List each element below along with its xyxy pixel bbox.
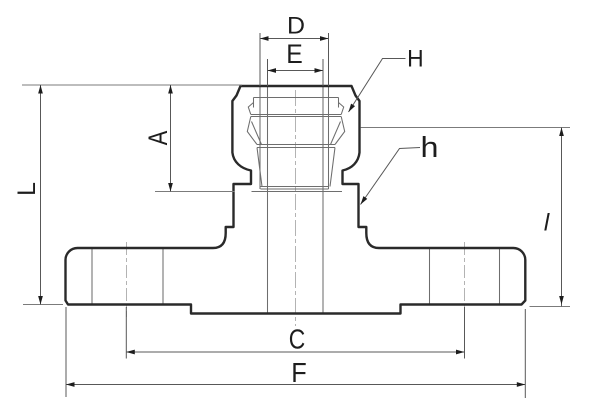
svg-text:E: E: [286, 39, 303, 69]
svg-text:C: C: [289, 323, 306, 354]
svg-text:l: l: [544, 210, 550, 237]
svg-text:A: A: [143, 131, 173, 146]
svg-text:h: h: [421, 132, 439, 164]
svg-text:D: D: [287, 12, 305, 39]
svg-text:L: L: [13, 182, 41, 196]
svg-text:H: H: [407, 46, 424, 73]
svg-text:F: F: [291, 357, 307, 388]
